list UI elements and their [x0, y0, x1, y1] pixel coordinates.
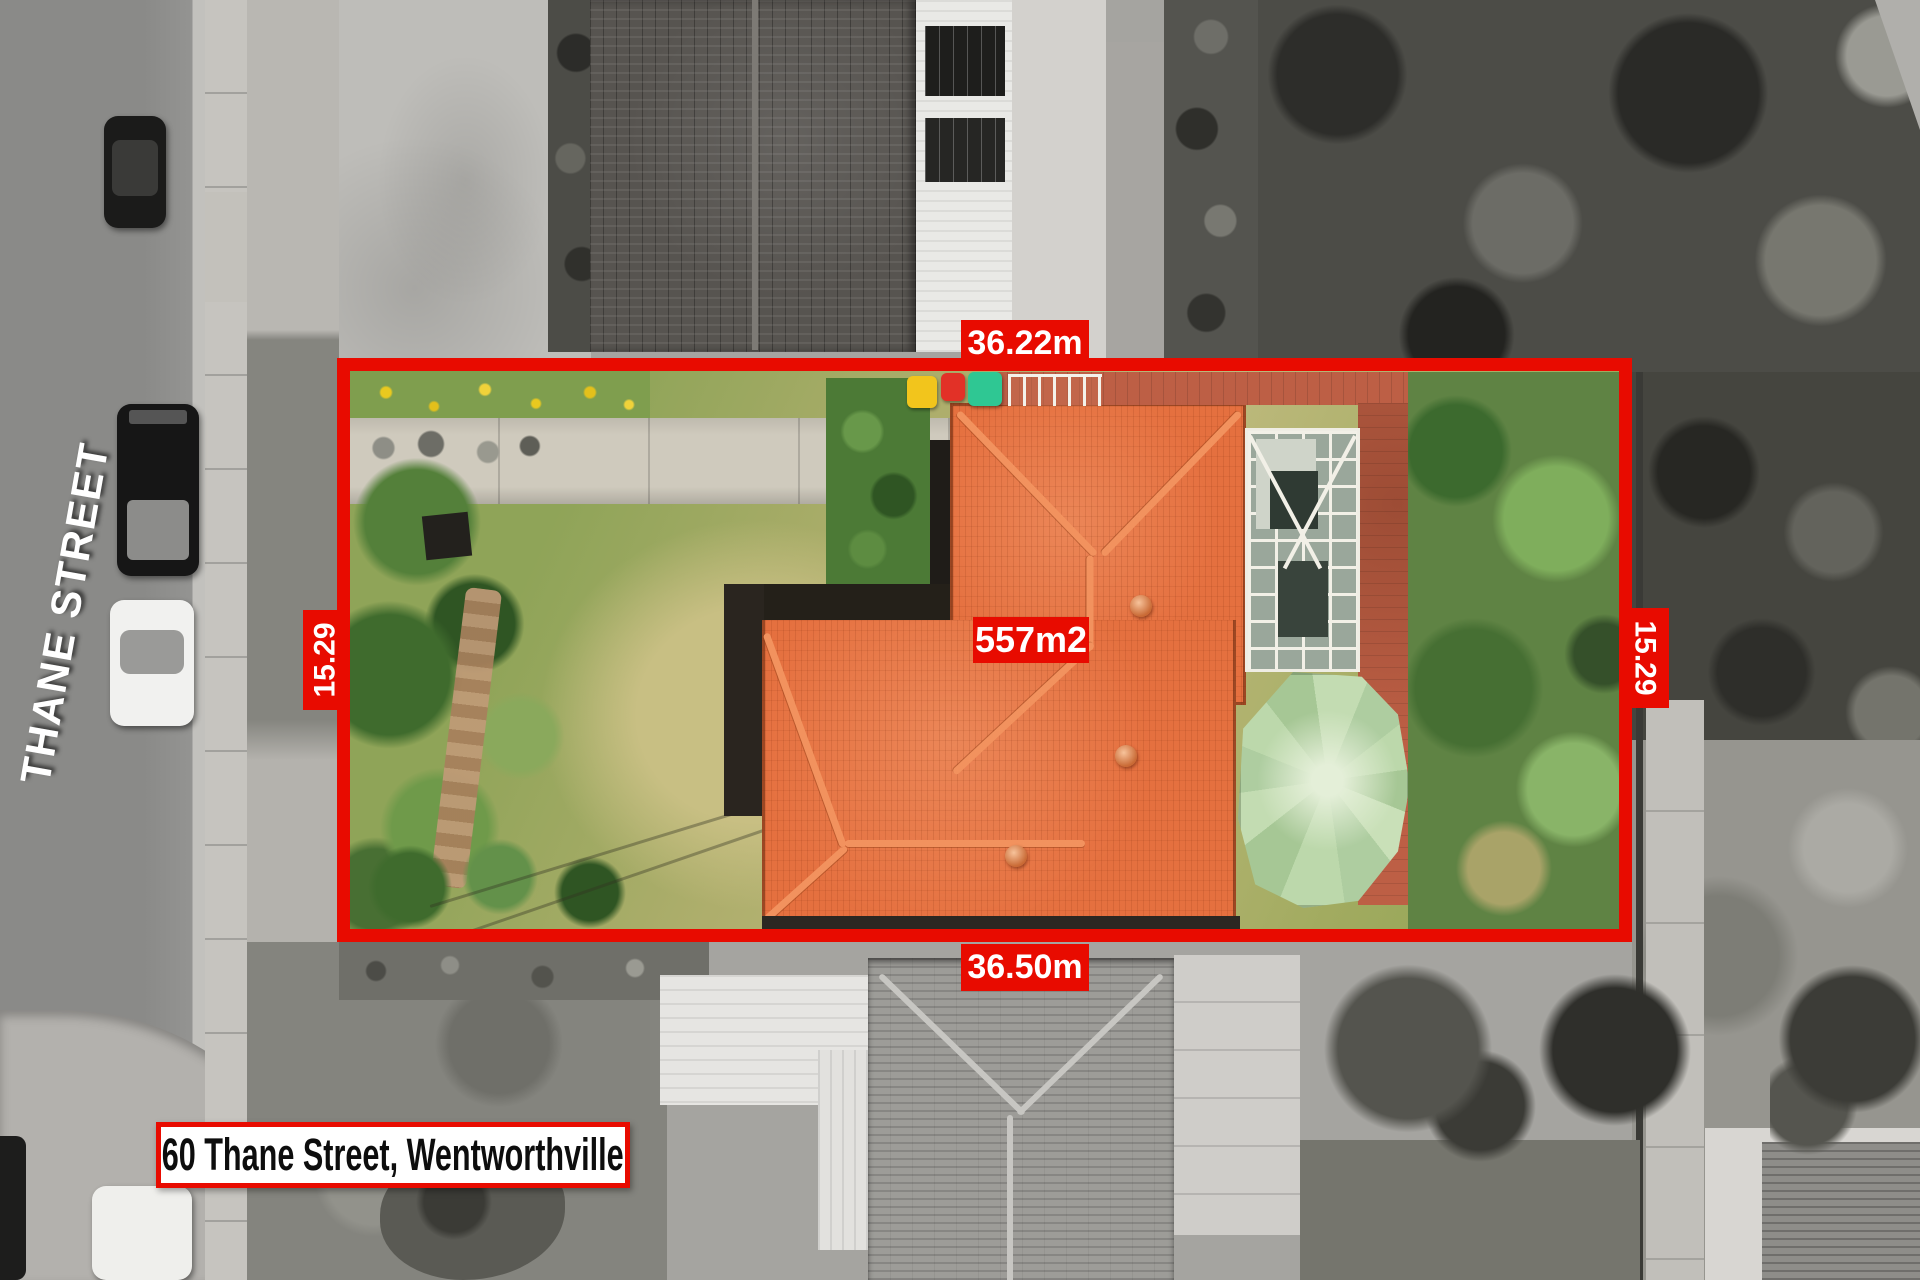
- dark-car: [104, 116, 166, 228]
- tree-row: [1164, 0, 1258, 368]
- dark-suv: [117, 404, 199, 576]
- dimension-label-left: 15.29: [303, 610, 349, 710]
- bottom-tree: [1520, 945, 1710, 1155]
- bottom-tree: [1300, 945, 1540, 1175]
- bottom-garage-roof-extension: [818, 1050, 868, 1250]
- land-area-label: 557m2: [973, 617, 1089, 663]
- rock-garden-strip: [339, 942, 709, 1000]
- white-car-bottom: [92, 1186, 192, 1280]
- neighbor-concrete-pad: [1012, 0, 1106, 362]
- bottom-neighbor-patio: [1174, 955, 1300, 1235]
- white-car: [110, 600, 194, 726]
- land-area-text: 557m2: [975, 619, 1087, 661]
- dimension-right-text: 15.29: [1628, 620, 1662, 695]
- dimension-bottom-text: 36.50m: [967, 948, 1082, 987]
- solar-panel: [925, 26, 1005, 96]
- dimension-label-bottom: 36.50m: [961, 944, 1089, 991]
- bottom-roof-main-ridge: [1007, 1115, 1013, 1280]
- tree-canopy: [1258, 0, 1920, 372]
- solar-panel: [925, 118, 1005, 182]
- bottom-right-house-roof: [1762, 1142, 1920, 1280]
- bottom-right-tree: [1770, 940, 1920, 1160]
- address-plate: 60 Thane Street, Wentworthville: [156, 1122, 630, 1188]
- dimension-top-text: 36.22m: [967, 324, 1082, 363]
- neighbor-roof-ridge: [752, 0, 758, 350]
- dimension-label-top: 36.22m: [961, 320, 1089, 366]
- dark-car-edge: [0, 1136, 26, 1280]
- aerial-property-photo: 36.22m 36.50m 15.29 15.29 557m2 60 Thane…: [0, 0, 1920, 1280]
- dimension-label-right: 15.29: [1621, 608, 1669, 708]
- address-text: 60 Thane Street, Wentworthville: [162, 1129, 624, 1181]
- neighbor-paving-dark: [1106, 42, 1164, 362]
- dimension-left-text: 15.29: [309, 622, 343, 697]
